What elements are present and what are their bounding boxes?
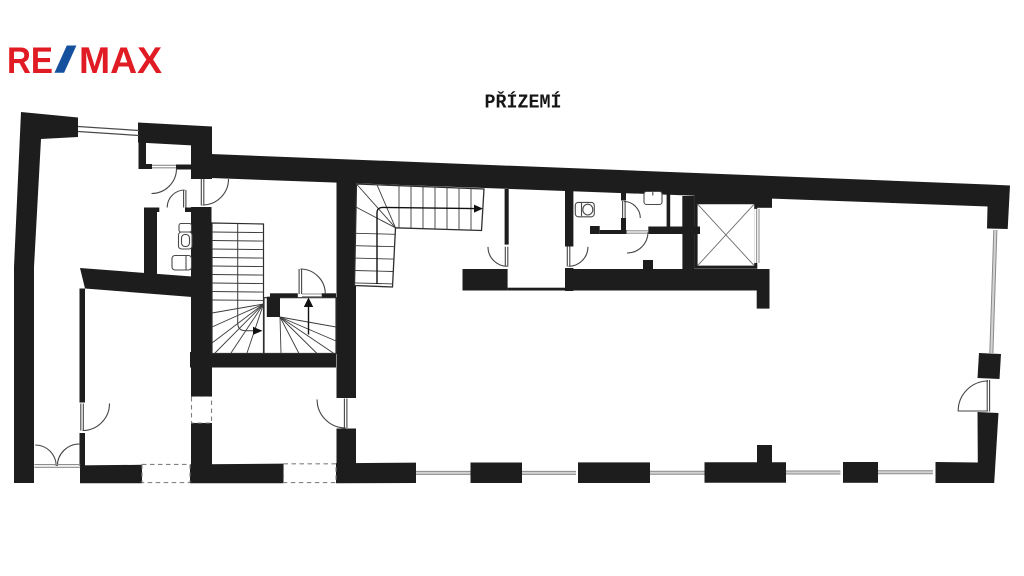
svg-text:MAX: MAX — [79, 39, 162, 81]
svg-text:PŘÍZEMÍ: PŘÍZEMÍ — [485, 92, 562, 114]
svg-text:RE: RE — [7, 39, 53, 81]
